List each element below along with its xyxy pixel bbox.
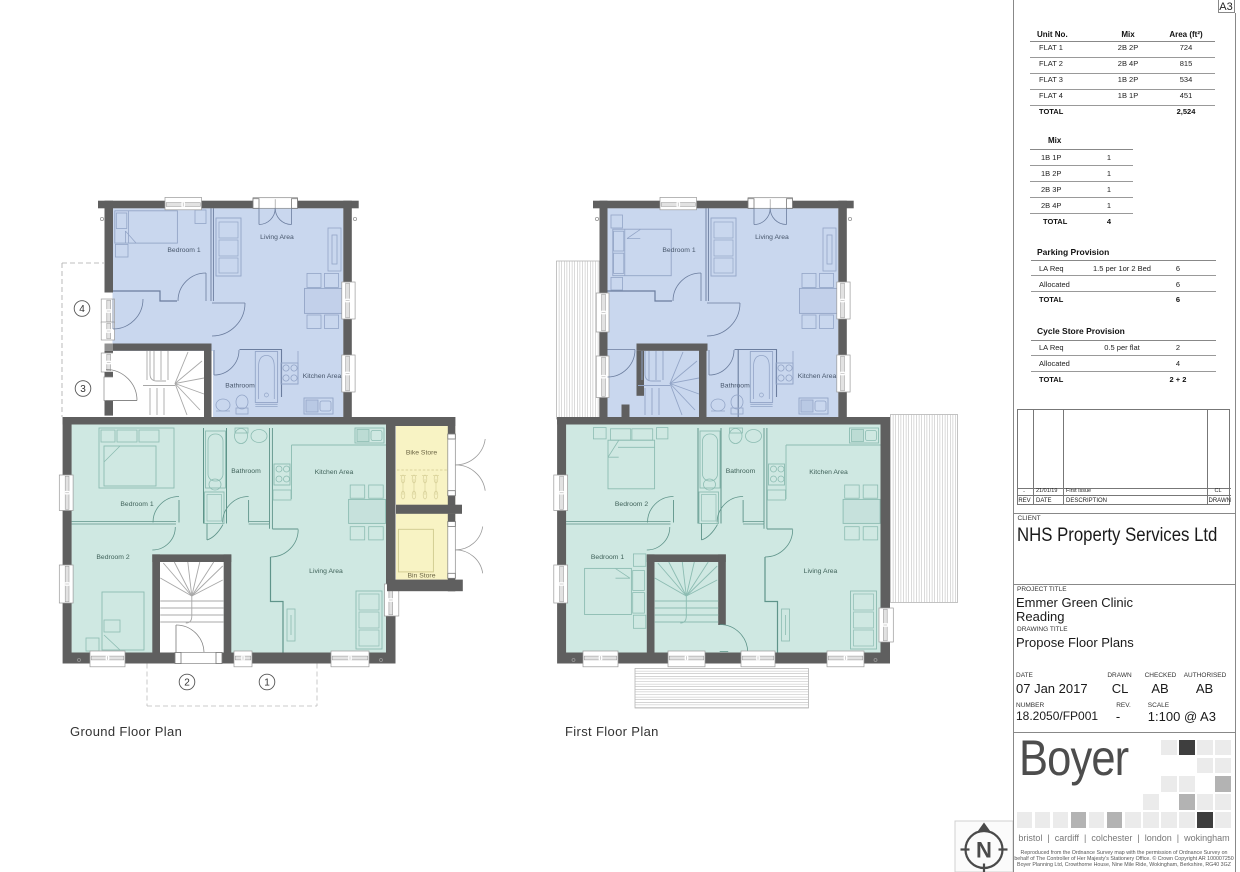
svg-text:Bedroom 2: Bedroom 2 (615, 501, 648, 508)
svg-text:Bike Store: Bike Store (406, 450, 438, 457)
svg-text:1: 1 (264, 678, 270, 689)
svg-text:Bedroom 1: Bedroom 1 (591, 554, 624, 561)
svg-text:First Floor Plan: First Floor Plan (565, 724, 659, 739)
svg-text:Bedroom 1: Bedroom 1 (167, 247, 200, 254)
svg-text:Living Area: Living Area (804, 568, 838, 575)
svg-text:Bathroom: Bathroom (225, 383, 255, 390)
svg-text:Kitchen Area: Kitchen Area (798, 373, 837, 380)
svg-text:2: 2 (184, 678, 190, 689)
svg-text:Bathroom: Bathroom (720, 383, 750, 390)
svg-text:Living Area: Living Area (309, 568, 343, 575)
svg-text:4: 4 (79, 304, 85, 315)
svg-text:Kitchen Area: Kitchen Area (809, 469, 848, 476)
svg-text:Ground Floor Plan: Ground Floor Plan (70, 724, 182, 739)
svg-text:Living Area: Living Area (755, 234, 789, 241)
svg-text:Bathroom: Bathroom (231, 468, 261, 475)
svg-text:Bathroom: Bathroom (726, 468, 756, 475)
svg-text:Bedroom 1: Bedroom 1 (120, 501, 153, 508)
svg-text:Kitchen Area: Kitchen Area (303, 373, 342, 380)
svg-text:Bin Store: Bin Store (408, 573, 436, 580)
svg-text:3: 3 (80, 384, 86, 395)
svg-text:Living Area: Living Area (260, 234, 294, 241)
svg-text:Bedroom 1: Bedroom 1 (662, 247, 695, 254)
svg-text:Kitchen Area: Kitchen Area (315, 469, 354, 476)
svg-text:N: N (976, 838, 992, 863)
svg-text:Bedroom 2: Bedroom 2 (96, 554, 129, 561)
